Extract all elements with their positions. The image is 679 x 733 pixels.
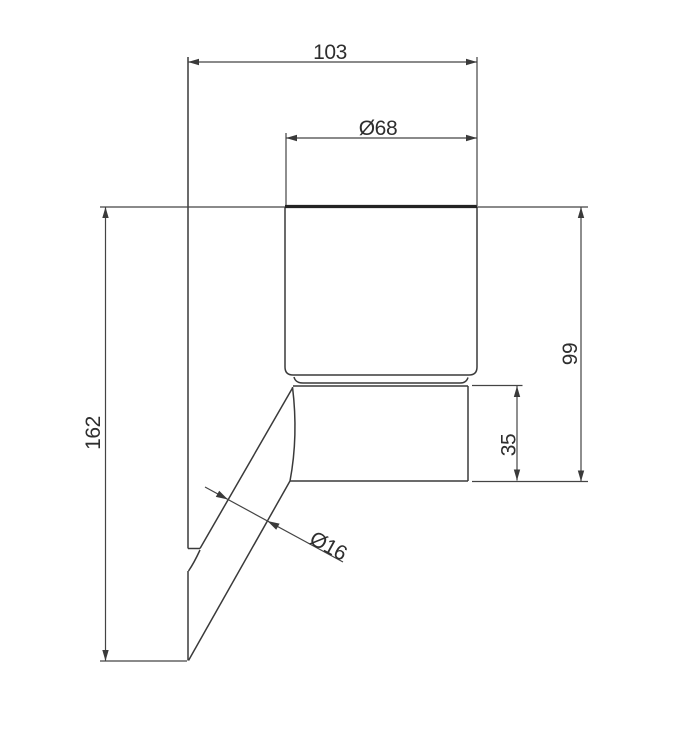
arrowhead-162-bottom: [102, 650, 108, 661]
dimension-label-35: 35: [498, 434, 521, 457]
drawing-canvas: 103 Ø68 162 99 35 Ø16: [0, 0, 679, 733]
arm-lower-edge: [189, 481, 291, 661]
cup-bottom-lip: [294, 377, 468, 383]
arrowhead-35-top: [514, 386, 520, 397]
arrowhead-68-right: [466, 135, 477, 141]
arrowhead-99-bottom: [578, 471, 584, 482]
arrowhead-103-left: [188, 59, 199, 65]
arrowhead-68-left: [286, 135, 297, 141]
dimension-label-103: 103: [313, 41, 347, 64]
arrowhead-162-top: [102, 207, 108, 218]
wall-plate-notch-curve: [189, 550, 201, 571]
holder-left-edge: [290, 387, 295, 481]
dimension-label-99: 99: [559, 343, 582, 366]
arrowhead-99-top: [578, 207, 584, 218]
arrowhead-16-upper: [216, 491, 228, 500]
arrowhead-16-lower: [267, 521, 279, 530]
arrowhead-35-bottom: [514, 470, 520, 481]
arrowhead-103-right: [466, 59, 477, 65]
technical-drawing: 103 Ø68 162 99 35 Ø16: [0, 0, 679, 733]
dimension-label-cup-diameter: Ø68: [359, 117, 398, 140]
dimension-label-162: 162: [82, 416, 105, 450]
cup-outline: [285, 207, 477, 375]
dimension-label-arm-diameter: Ø16: [306, 527, 351, 566]
